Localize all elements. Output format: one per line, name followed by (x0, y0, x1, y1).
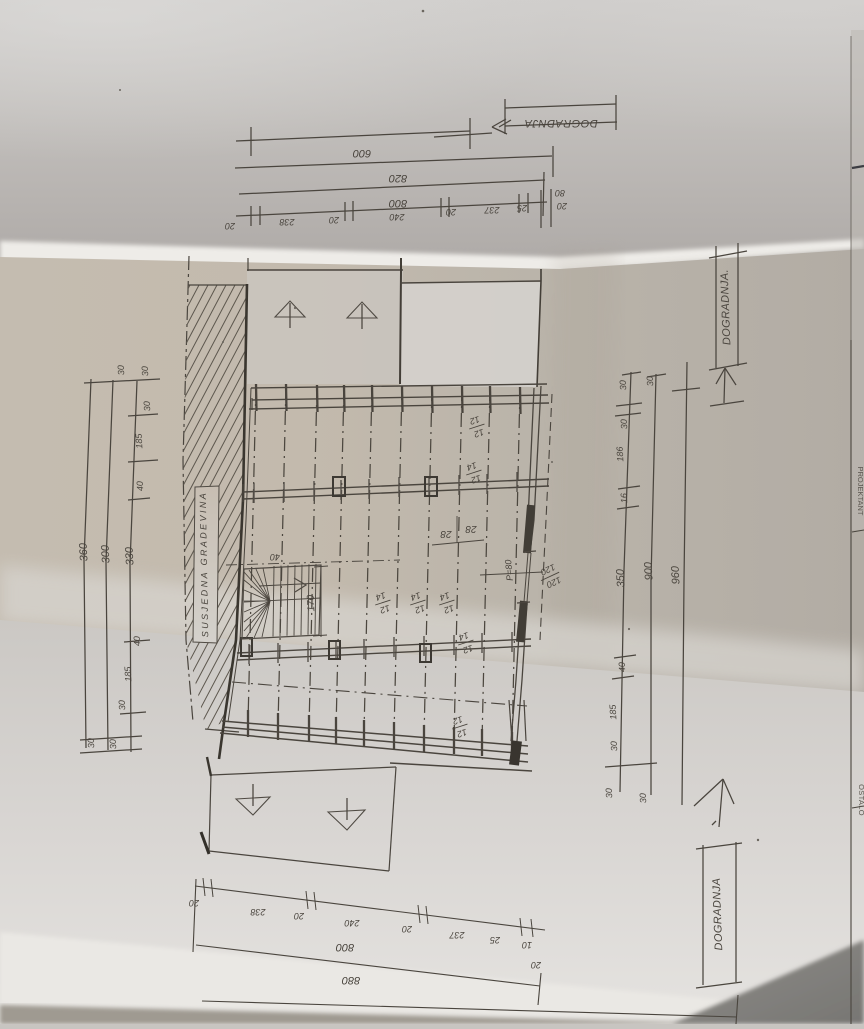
svg-text:30: 30 (140, 366, 151, 377)
svg-text:30: 30 (609, 741, 620, 752)
svg-text:20: 20 (531, 960, 542, 970)
svg-text:820: 820 (388, 172, 407, 184)
svg-text:30: 30 (638, 793, 649, 804)
svg-text:DOGRADNJA: DOGRADNJA (524, 117, 598, 129)
svg-text:DOGRADNJA: DOGRADNJA (711, 878, 726, 951)
svg-text:238: 238 (279, 217, 295, 227)
svg-text:300: 300 (99, 544, 112, 564)
svg-text:80: 80 (555, 188, 565, 198)
svg-text:30: 30 (142, 401, 153, 412)
svg-text:185: 185 (134, 432, 145, 449)
svg-text:240: 240 (344, 918, 360, 928)
svg-text:25: 25 (489, 935, 501, 945)
svg-text:30: 30 (86, 738, 97, 749)
svg-text:20: 20 (402, 924, 413, 934)
svg-text:240: 240 (389, 212, 405, 222)
svg-text:237: 237 (484, 205, 501, 215)
svg-text:238: 238 (250, 907, 266, 917)
svg-text:880: 880 (341, 974, 360, 986)
svg-text:OSTALO: OSTALO (857, 784, 864, 816)
svg-text:16: 16 (619, 493, 630, 504)
svg-text:30: 30 (619, 419, 630, 430)
svg-text:960: 960 (669, 565, 682, 585)
svg-text:237: 237 (449, 930, 466, 940)
svg-text:900: 900 (642, 561, 655, 581)
svg-text:30: 30 (116, 365, 127, 376)
svg-text:30: 30 (117, 700, 128, 711)
svg-text:P=80: P=80 (503, 559, 515, 581)
svg-text:170: 170 (306, 594, 318, 612)
svg-text:185: 185 (608, 703, 619, 720)
svg-text:20: 20 (329, 215, 340, 225)
svg-text:30: 30 (618, 380, 629, 391)
svg-text:40: 40 (617, 662, 628, 673)
svg-text:20: 20 (446, 207, 457, 217)
svg-text:40: 40 (270, 552, 280, 562)
svg-text:20: 20 (189, 898, 200, 908)
svg-text:40: 40 (132, 636, 143, 647)
svg-text:800: 800 (388, 197, 407, 209)
svg-text:20: 20 (294, 911, 305, 921)
svg-text:10: 10 (522, 940, 532, 950)
svg-text:185: 185 (123, 665, 134, 682)
svg-text:30: 30 (108, 739, 119, 750)
svg-text:800: 800 (335, 941, 354, 953)
svg-text:600: 600 (352, 147, 371, 159)
svg-text:350: 350 (614, 568, 627, 588)
svg-text:20: 20 (557, 201, 568, 211)
svg-text:PROJEKTANT: PROJEKTANT (856, 466, 864, 515)
svg-text:360: 360 (77, 542, 90, 562)
svg-text:186: 186 (615, 446, 626, 462)
svg-text:28: 28 (465, 523, 478, 534)
svg-text:330: 330 (123, 546, 136, 566)
svg-text:25: 25 (516, 203, 528, 213)
svg-text:40: 40 (135, 481, 146, 492)
svg-text:30: 30 (645, 376, 656, 387)
svg-text:28: 28 (440, 528, 453, 539)
svg-text:20: 20 (225, 221, 236, 231)
svg-text:30: 30 (604, 788, 615, 799)
